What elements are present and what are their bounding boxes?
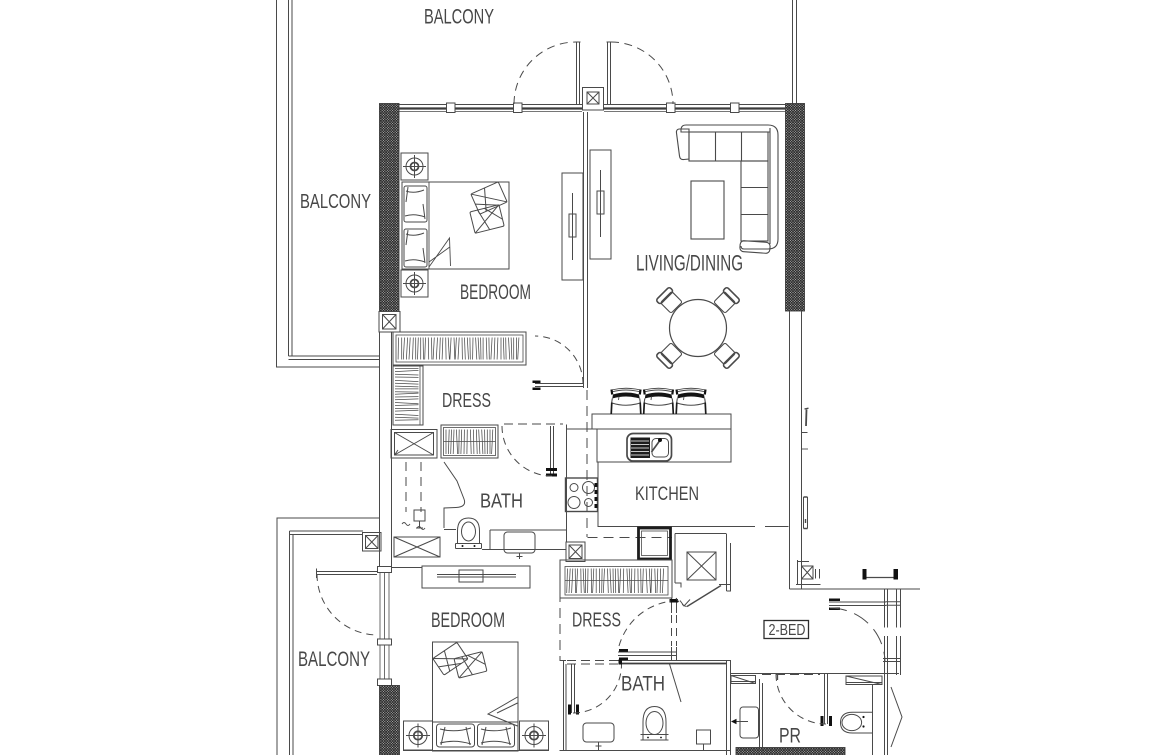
svg-text:BATH: BATH [621, 673, 665, 696]
svg-text:BATH: BATH [480, 491, 523, 513]
svg-text:LIVING/DINING: LIVING/DINING [636, 251, 743, 276]
svg-text:2-BED: 2-BED [769, 622, 806, 639]
svg-text:BEDROOM: BEDROOM [431, 609, 505, 632]
svg-text:BEDROOM: BEDROOM [460, 280, 531, 304]
svg-text:DRESS: DRESS [572, 610, 621, 632]
svg-text:BALCONY: BALCONY [300, 191, 371, 213]
svg-text:DRESS: DRESS [442, 390, 491, 412]
svg-text:BALCONY: BALCONY [298, 648, 370, 671]
svg-text:PR: PR [779, 725, 801, 748]
svg-text:BALCONY: BALCONY [424, 5, 494, 29]
svg-text:KITCHEN: KITCHEN [635, 484, 699, 505]
